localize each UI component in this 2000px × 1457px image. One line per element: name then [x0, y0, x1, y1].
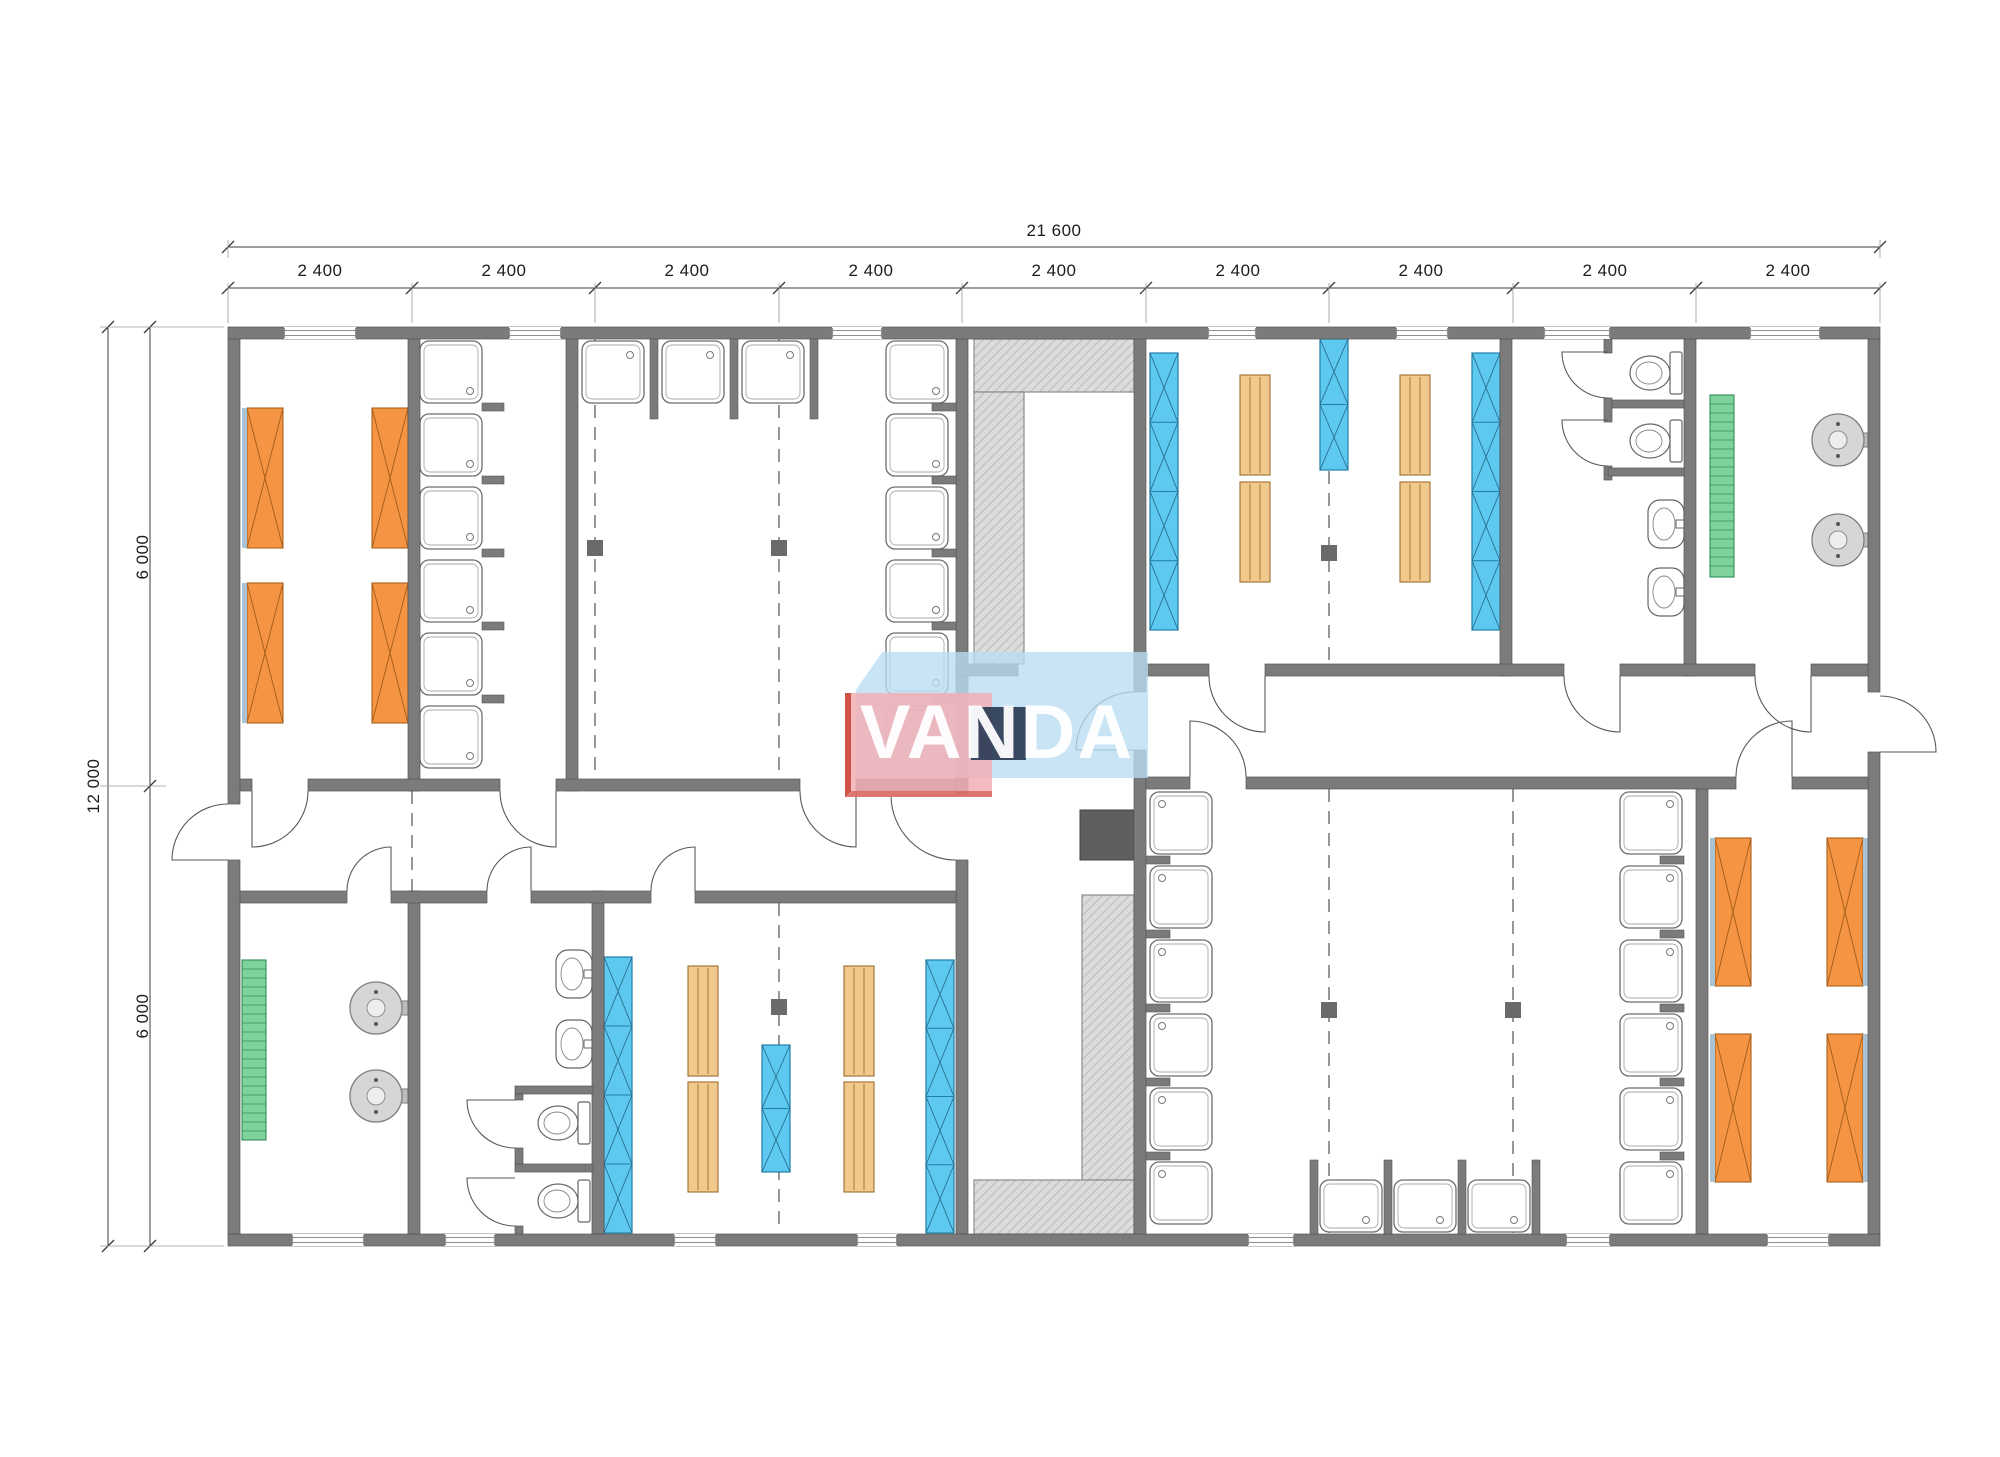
door-swing	[252, 791, 308, 847]
dim-bay-8: 2 400	[1575, 261, 1635, 281]
door-swing	[1755, 676, 1811, 732]
wall-segment	[240, 891, 347, 903]
tray-outer	[742, 341, 804, 403]
bench-body	[1240, 375, 1270, 475]
tray-outer	[662, 341, 724, 403]
wall-segment	[391, 891, 487, 903]
stove	[1080, 810, 1134, 860]
heater-port	[1829, 431, 1847, 449]
wall-segment	[1612, 400, 1684, 408]
wall-segment	[956, 860, 968, 1234]
shower-stub	[932, 476, 956, 484]
bench-body	[1400, 375, 1430, 475]
wall-segment	[408, 339, 420, 791]
shower-tray	[742, 341, 804, 403]
wall-segment	[515, 1148, 523, 1164]
radiator	[1710, 395, 1734, 577]
window-gap	[445, 1234, 495, 1246]
window-gap	[284, 327, 356, 339]
drain	[467, 753, 474, 760]
shower-stub	[1660, 930, 1684, 938]
window-gap	[1544, 327, 1610, 339]
shower-stub	[1458, 1160, 1466, 1234]
toilet	[538, 1102, 590, 1144]
bed	[1710, 1034, 1751, 1182]
door-swing	[1562, 352, 1608, 398]
wash-basin	[556, 950, 592, 998]
wall-segment	[515, 1164, 593, 1172]
shower-stub	[932, 549, 956, 557]
bench-body	[1400, 482, 1430, 582]
shower-tray	[1150, 1162, 1212, 1224]
shower-stub	[1660, 856, 1684, 864]
shower-stub	[730, 339, 738, 419]
drain	[933, 607, 940, 614]
drain	[933, 461, 940, 468]
bed-headrail	[1710, 1034, 1715, 1182]
wall-segment	[1134, 339, 1146, 692]
window	[674, 1234, 716, 1246]
window	[1767, 1234, 1829, 1246]
window	[1396, 327, 1448, 339]
door-swing	[651, 847, 695, 891]
water-heater	[350, 982, 408, 1034]
wall-segment	[228, 860, 240, 1234]
bench	[1240, 482, 1270, 582]
dim-lower-height: 6 000	[133, 986, 153, 1046]
window-gap	[1767, 1234, 1829, 1246]
wall-segment	[408, 891, 420, 1234]
window	[445, 1234, 495, 1246]
locker-cabinet	[1150, 353, 1178, 630]
shower-stub	[932, 622, 956, 630]
wall-segment	[1146, 664, 1209, 676]
toilet-tank	[1670, 352, 1682, 394]
column-marker	[587, 540, 603, 556]
wall-segment	[1620, 664, 1755, 676]
drain	[1363, 1217, 1370, 1224]
column-marker	[771, 540, 787, 556]
dim-total-width: 21 600	[1004, 221, 1104, 241]
shower-stub	[1146, 930, 1170, 938]
shower-stub	[810, 339, 818, 419]
wall-segment	[592, 891, 604, 1234]
bed-headrail	[1863, 1034, 1868, 1182]
tray-outer	[1320, 1180, 1382, 1232]
drain	[467, 388, 474, 395]
drain	[787, 352, 794, 359]
shower-stub	[482, 695, 504, 703]
shower-tray	[420, 487, 482, 549]
bed	[372, 408, 413, 548]
bench-body	[688, 1082, 718, 1192]
shower-stub	[482, 622, 504, 630]
toilet-tank	[578, 1180, 590, 1222]
window	[1544, 327, 1610, 339]
shower-tray	[582, 341, 644, 403]
drain	[933, 534, 940, 541]
window-gap	[1750, 327, 1820, 339]
door-swing	[467, 1100, 515, 1148]
heater-dot	[1836, 522, 1840, 526]
wall-segment	[956, 664, 1018, 676]
shower-stub	[1146, 856, 1170, 864]
shower-tray	[886, 487, 948, 549]
bench	[688, 966, 718, 1076]
bed	[1827, 838, 1868, 986]
wall-segment	[240, 779, 252, 791]
wall-segment	[1246, 777, 1736, 789]
drain	[1159, 875, 1166, 882]
door-swing	[1209, 676, 1265, 732]
shower-tray	[1620, 866, 1682, 928]
tray-outer	[1468, 1180, 1530, 1232]
shower-tray	[1620, 1088, 1682, 1150]
heater-dot	[374, 1022, 378, 1026]
window	[832, 327, 882, 339]
shower-tray	[1394, 1180, 1456, 1232]
shower-tray	[1150, 866, 1212, 928]
locker-cabinet	[604, 957, 632, 1233]
shower-tray	[420, 633, 482, 695]
drain	[627, 352, 634, 359]
locker-cabinet	[1472, 353, 1500, 630]
window-gap	[832, 327, 882, 339]
drain	[1159, 801, 1166, 808]
dim-bay-9: 2 400	[1758, 261, 1818, 281]
bench	[1240, 375, 1270, 475]
water-heater	[1812, 514, 1868, 566]
dim-bay-7: 2 400	[1391, 261, 1451, 281]
shower-tray	[1150, 940, 1212, 1002]
door-swing	[891, 795, 956, 860]
wall-segment	[556, 779, 800, 791]
drain	[933, 388, 940, 395]
toilet-tank	[1670, 420, 1682, 462]
shower-stub	[932, 403, 956, 411]
window	[1750, 327, 1820, 339]
door-swing	[1076, 692, 1134, 750]
vestibule-counter	[974, 392, 1024, 664]
window	[1248, 1234, 1294, 1246]
tray-outer	[1394, 1180, 1456, 1232]
bench	[1400, 375, 1430, 475]
drain	[1667, 1097, 1674, 1104]
wash-basin	[1648, 500, 1684, 548]
door-swing	[500, 791, 556, 847]
wall-segment	[228, 327, 1880, 339]
shower-stub	[650, 339, 658, 419]
window-gap	[509, 327, 561, 339]
window	[857, 1234, 897, 1246]
bed	[1710, 838, 1751, 986]
wash-basin	[556, 1020, 592, 1068]
shower-tray	[1150, 1088, 1212, 1150]
drain	[467, 680, 474, 687]
wall-segment	[695, 891, 956, 903]
drain	[467, 607, 474, 614]
dim-bay-1: 2 400	[290, 261, 350, 281]
door-swing	[467, 1178, 515, 1226]
bench-body	[844, 1082, 874, 1192]
wall-segment	[515, 1086, 593, 1094]
wall-segment	[1146, 777, 1190, 789]
heater-dot	[374, 990, 378, 994]
floor-plan-drawing	[0, 0, 2000, 1457]
basin-tap	[584, 1040, 592, 1048]
basin-tap	[1676, 588, 1684, 596]
drain	[1667, 1171, 1674, 1178]
bench	[1400, 482, 1430, 582]
wall-segment	[1868, 339, 1880, 692]
wall-segment	[566, 339, 578, 791]
window	[1566, 1234, 1610, 1246]
bed	[242, 408, 283, 548]
window	[292, 1234, 364, 1246]
vestibule-counter	[974, 339, 1134, 392]
drain	[1159, 949, 1166, 956]
door-swing	[487, 847, 531, 891]
column-marker	[1321, 545, 1337, 561]
door-swing	[1880, 696, 1936, 752]
shower-tray	[1620, 1014, 1682, 1076]
basin-tap	[1676, 520, 1684, 528]
shower-tray	[1620, 940, 1682, 1002]
drain	[707, 352, 714, 359]
window-gap	[857, 1234, 897, 1246]
drain	[1667, 875, 1674, 882]
door-swing	[172, 804, 228, 860]
hatched-counters	[974, 339, 1134, 1234]
door-swing	[1564, 676, 1620, 732]
heater-dot	[1836, 554, 1840, 558]
window	[509, 327, 561, 339]
shower-tray	[662, 341, 724, 403]
dim-upper-height: 6 000	[133, 527, 153, 587]
drain	[1159, 1097, 1166, 1104]
drain	[1667, 949, 1674, 956]
locker-cabinet	[1320, 339, 1348, 470]
toilet	[538, 1180, 590, 1222]
wall-segment	[1604, 339, 1612, 353]
shower-stub	[1660, 1152, 1684, 1160]
drain	[1159, 1023, 1166, 1030]
bench	[844, 966, 874, 1076]
dim-bay-6: 2 400	[1208, 261, 1268, 281]
window	[284, 327, 356, 339]
wall-segment	[531, 891, 651, 903]
door-swing	[1736, 721, 1792, 777]
shower-stub	[1146, 1078, 1170, 1086]
wall-segment	[1134, 750, 1146, 1234]
water-heater	[350, 1070, 408, 1122]
bench	[844, 1082, 874, 1192]
shower-tray	[886, 560, 948, 622]
door-swing	[1190, 721, 1246, 777]
column-marker	[1505, 1002, 1521, 1018]
door-swing	[1562, 420, 1608, 466]
shower-stub	[932, 695, 956, 703]
heater-port	[367, 999, 385, 1017]
drain	[933, 753, 940, 760]
window-gap	[674, 1234, 716, 1246]
shower-stub	[1146, 1004, 1170, 1012]
dim-total-height: 12 000	[84, 756, 104, 816]
shower-tray	[420, 414, 482, 476]
shower-tray	[420, 341, 482, 403]
shower-stub	[1384, 1160, 1392, 1234]
drain	[1667, 1023, 1674, 1030]
shower-tray	[1150, 1014, 1212, 1076]
tray-outer	[582, 341, 644, 403]
basin-tap	[584, 970, 592, 978]
bench	[688, 1082, 718, 1192]
bed-headrail	[242, 583, 247, 723]
window-gap	[1248, 1234, 1294, 1246]
door-swing	[800, 791, 856, 847]
locker-cabinet	[762, 1045, 790, 1172]
wall-segment	[1684, 339, 1696, 676]
window-gap	[1566, 1234, 1610, 1246]
shower-tray	[1620, 792, 1682, 854]
heater-dot	[1836, 454, 1840, 458]
shower-tray	[1620, 1162, 1682, 1224]
shower-stub	[482, 549, 504, 557]
shower-stub	[1532, 1160, 1540, 1234]
dim-bay-3: 2 400	[657, 261, 717, 281]
shower-tray	[886, 341, 948, 403]
wall-segment	[956, 339, 968, 795]
window	[1208, 327, 1256, 339]
wall-segment	[1604, 398, 1612, 422]
heater-dot	[1836, 422, 1840, 426]
shower-tray	[420, 560, 482, 622]
shower-tray	[886, 633, 948, 695]
toilet	[1630, 420, 1682, 462]
radiator	[242, 960, 266, 1140]
shower-stub	[1660, 1004, 1684, 1012]
dim-bay-5: 2 400	[1024, 261, 1084, 281]
wall-segment	[1868, 752, 1880, 1234]
wall-segment	[308, 779, 500, 791]
shower-tray	[1150, 792, 1212, 854]
kitchen-counter	[974, 1180, 1134, 1234]
drain	[933, 680, 940, 687]
locker-cabinet	[926, 960, 954, 1233]
shower-stub	[1660, 1078, 1684, 1086]
window-gap	[1396, 327, 1448, 339]
heater-dot	[374, 1110, 378, 1114]
shower-tray	[420, 706, 482, 768]
shower-stub	[1310, 1160, 1318, 1234]
dim-bay-4: 2 400	[841, 261, 901, 281]
bench-body	[1240, 482, 1270, 582]
wall-segment	[856, 779, 956, 791]
wall-segment	[1500, 339, 1512, 676]
shower-tray	[886, 414, 948, 476]
bed-headrail	[242, 408, 247, 548]
wall-segment	[515, 1226, 523, 1234]
shower-tray	[1468, 1180, 1530, 1232]
shower-stub	[1146, 1152, 1170, 1160]
drain	[1159, 1171, 1166, 1178]
bed	[1827, 1034, 1868, 1182]
shower-stub	[482, 403, 504, 411]
floor-plan-canvas: 21 600 2 400 2 400 2 400 2 400 2 400 2 4…	[0, 0, 2000, 1457]
bed	[242, 583, 283, 723]
drain	[467, 461, 474, 468]
wall-segment	[1265, 664, 1564, 676]
dim-bay-2: 2 400	[474, 261, 534, 281]
column-marker	[1321, 1002, 1337, 1018]
toilet	[1630, 352, 1682, 394]
toilet-tank	[578, 1102, 590, 1144]
bed	[372, 583, 413, 723]
wash-basin	[1648, 568, 1684, 616]
wall-segment	[1696, 789, 1708, 1234]
bench-body	[844, 966, 874, 1076]
window-gap	[292, 1234, 364, 1246]
kitchen-counter	[1082, 895, 1134, 1180]
wall-segment	[1811, 664, 1868, 676]
bed-headrail	[1863, 838, 1868, 986]
column-marker	[771, 999, 787, 1015]
drain	[467, 534, 474, 541]
wall-segment	[1792, 777, 1868, 789]
bed-headrail	[1710, 838, 1715, 986]
wall-segment	[1608, 468, 1684, 476]
door-swing	[347, 847, 391, 891]
window-gap	[1208, 327, 1256, 339]
wall-segment	[515, 1094, 523, 1100]
shower-stub	[482, 476, 504, 484]
drain	[1667, 801, 1674, 808]
wall-segment	[228, 339, 240, 804]
drain	[1511, 1217, 1518, 1224]
drain	[1437, 1217, 1444, 1224]
shower-tray	[1320, 1180, 1382, 1232]
shower-tray	[886, 706, 948, 768]
water-heater	[1812, 414, 1868, 466]
heater-port	[367, 1087, 385, 1105]
bench-body	[688, 966, 718, 1076]
heater-port	[1829, 531, 1847, 549]
heater-dot	[374, 1078, 378, 1082]
